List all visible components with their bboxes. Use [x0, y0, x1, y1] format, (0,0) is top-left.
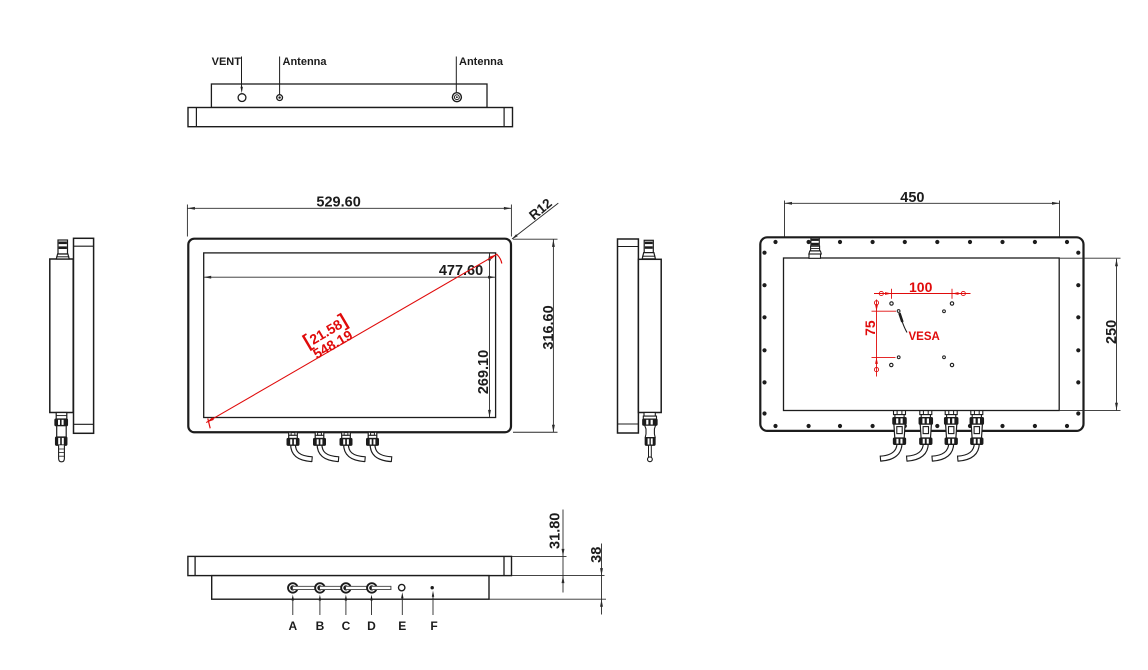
svg-text:529.60: 529.60	[316, 194, 360, 210]
svg-text:75: 75	[862, 320, 878, 336]
svg-text:316.60: 316.60	[541, 305, 557, 349]
svg-text:F: F	[430, 619, 437, 633]
svg-text:D: D	[367, 619, 376, 633]
svg-text:Antenna: Antenna	[459, 56, 504, 68]
svg-text:Antenna: Antenna	[283, 56, 328, 68]
svg-text:100: 100	[909, 279, 933, 295]
svg-text:VENT: VENT	[212, 56, 242, 68]
svg-text:VESA: VESA	[909, 331, 940, 343]
svg-text:31.80: 31.80	[547, 513, 563, 549]
svg-text:38: 38	[589, 547, 605, 563]
svg-text:450: 450	[900, 190, 924, 206]
svg-text:A: A	[288, 619, 297, 633]
svg-text:250: 250	[1104, 320, 1120, 344]
svg-text:269.10: 269.10	[476, 350, 492, 394]
svg-text:E: E	[398, 619, 406, 633]
svg-text:B: B	[316, 619, 325, 633]
svg-text:C: C	[342, 619, 351, 633]
